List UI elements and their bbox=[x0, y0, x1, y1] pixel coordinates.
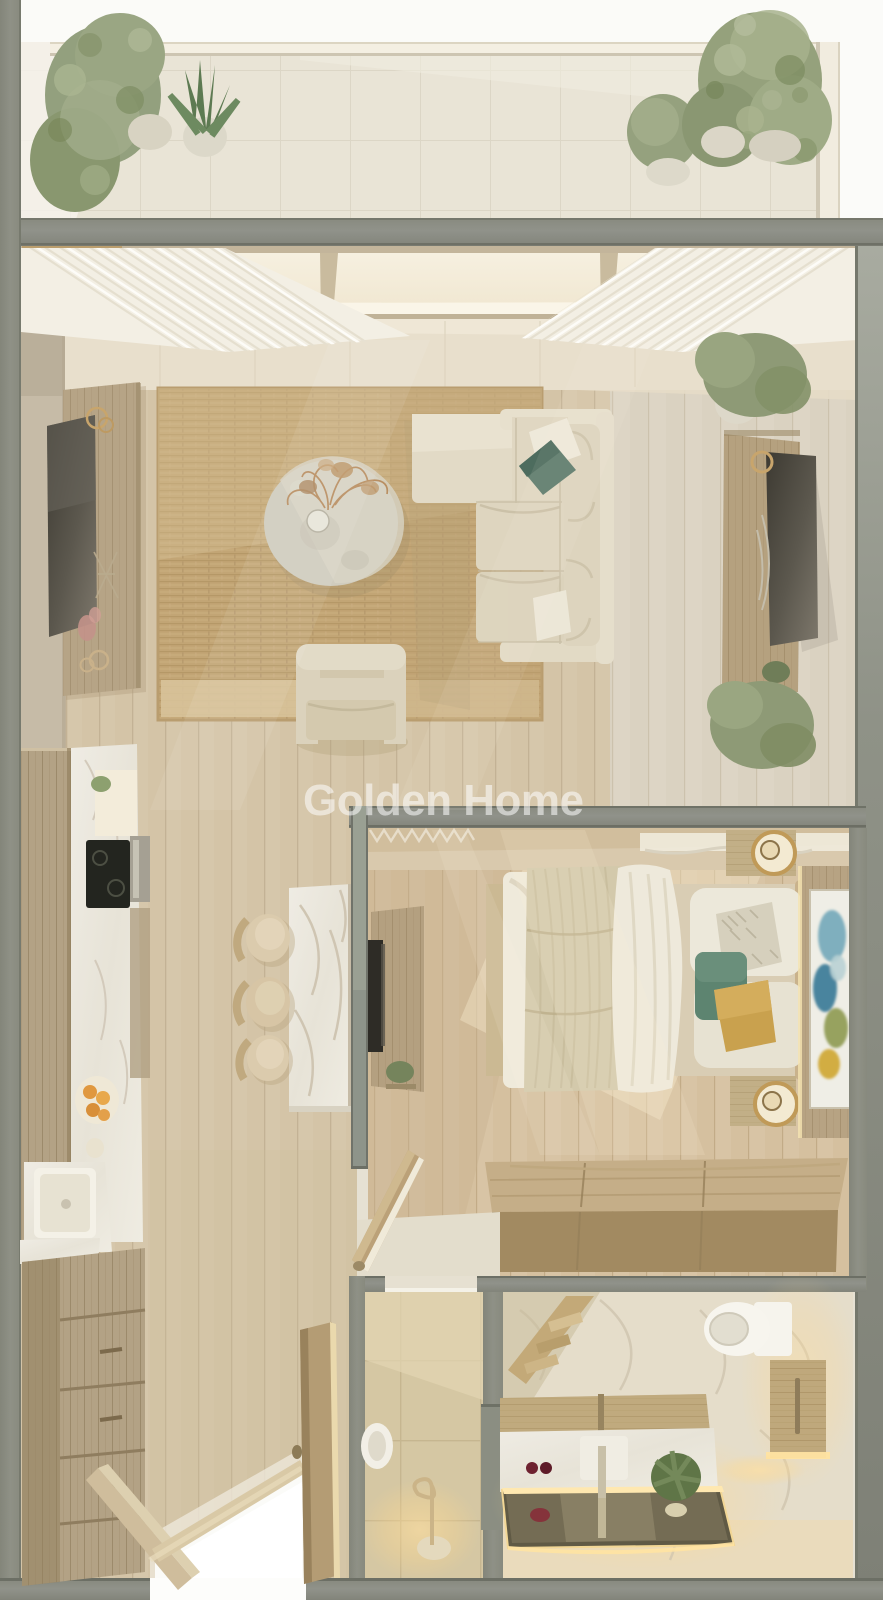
svg-text:Golden Home: Golden Home bbox=[303, 776, 584, 825]
